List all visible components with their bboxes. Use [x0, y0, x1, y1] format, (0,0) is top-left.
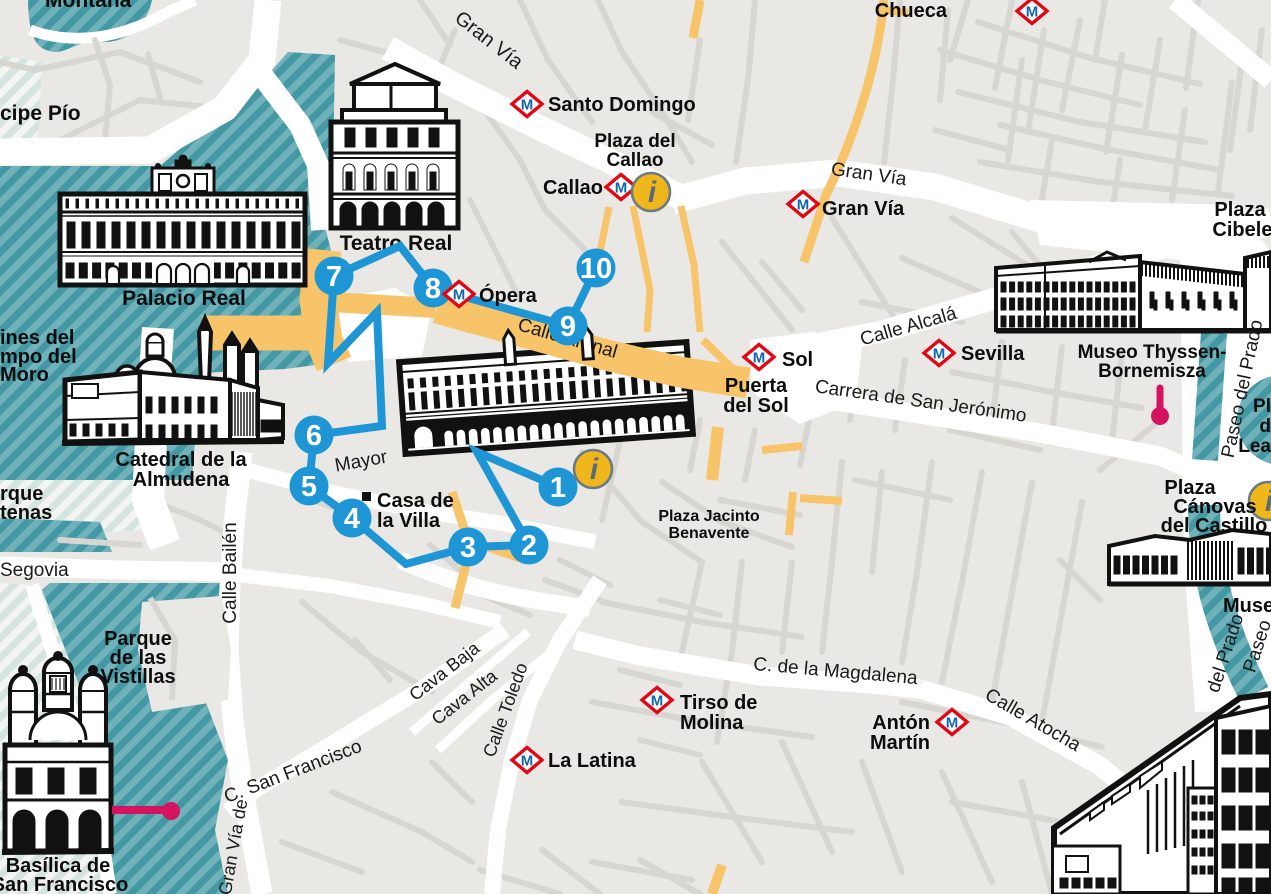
svg-text:M: M	[615, 180, 628, 197]
svg-text:tenas: tenas	[0, 502, 52, 524]
svg-text:del Castillo: del Castillo	[1161, 515, 1268, 537]
svg-text:Martín: Martín	[870, 732, 930, 754]
svg-text:Montaña: Montaña	[45, 0, 132, 12]
svg-text:Palacio Real: Palacio Real	[122, 287, 246, 310]
svg-text:Pl: Pl	[1253, 396, 1271, 417]
svg-text:Catedral de la: Catedral de la	[115, 449, 247, 471]
svg-text:Plaza del: Plaza del	[594, 131, 675, 152]
svg-text:Almudena: Almudena	[133, 469, 231, 491]
svg-text:10: 10	[580, 253, 612, 285]
svg-text:Ópera: Ópera	[479, 283, 538, 307]
svg-text:Bornemisza: Bornemisza	[1098, 361, 1206, 382]
svg-text:La Latina: La Latina	[548, 750, 637, 772]
svg-text:M: M	[651, 693, 664, 710]
svg-text:Callao: Callao	[606, 150, 663, 171]
svg-text:1: 1	[550, 472, 566, 504]
svg-text:Moro: Moro	[0, 364, 49, 386]
svg-text:5: 5	[301, 471, 317, 503]
svg-text:M: M	[1026, 4, 1039, 21]
svg-text:i: i	[1265, 485, 1271, 518]
svg-text:Calle Bailén: Calle Bailén	[220, 522, 241, 623]
svg-text:Santo Domingo: Santo Domingo	[548, 94, 696, 116]
svg-text:d: d	[1259, 416, 1271, 437]
svg-text:Cibeles: Cibeles	[1212, 219, 1271, 241]
svg-text:Sevilla: Sevilla	[961, 343, 1025, 365]
svg-text:M: M	[753, 350, 766, 367]
svg-text:Callao: Callao	[543, 177, 603, 199]
svg-text:M: M	[521, 97, 534, 114]
svg-text:Antón: Antón	[872, 712, 930, 734]
svg-text:9: 9	[560, 311, 576, 343]
svg-text:Segovia: Segovia	[0, 560, 69, 581]
svg-text:Gran Vía: Gran Vía	[822, 198, 905, 220]
svg-text:Plaza: Plaza	[1214, 199, 1266, 221]
svg-text:M: M	[946, 715, 959, 732]
svg-text:Vistillas: Vistillas	[100, 666, 175, 688]
svg-text:M: M	[453, 287, 466, 304]
svg-text:6: 6	[306, 420, 322, 452]
svg-text:8: 8	[425, 273, 441, 305]
svg-text:la Villa: la Villa	[377, 510, 441, 532]
svg-text:i: i	[648, 176, 657, 209]
svg-text:Sol: Sol	[782, 349, 813, 371]
svg-text:San Francisco: San Francisco	[0, 874, 128, 894]
svg-text:Molina: Molina	[680, 712, 744, 734]
svg-text:M: M	[933, 346, 946, 363]
svg-text:3: 3	[460, 532, 476, 564]
svg-text:cipe Pío: cipe Pío	[0, 102, 81, 125]
svg-text:Chueca: Chueca	[875, 0, 948, 22]
svg-text:Benavente: Benavente	[669, 525, 750, 542]
svg-text:del Sol: del Sol	[723, 395, 789, 417]
svg-text:Tirso de: Tirso de	[680, 692, 757, 714]
svg-text:Casa de: Casa de	[377, 490, 454, 512]
svg-text:4: 4	[344, 503, 360, 535]
svg-text:Puerta: Puerta	[725, 375, 788, 397]
svg-text:7: 7	[326, 261, 342, 293]
svg-text:Museo Thyssen-: Museo Thyssen-	[1078, 342, 1227, 363]
svg-text:M: M	[797, 197, 810, 214]
svg-text:Lea: Lea	[1238, 436, 1271, 457]
svg-text:Plaza Jacinto: Plaza Jacinto	[658, 508, 760, 525]
svg-text:i: i	[590, 453, 599, 486]
svg-text:2: 2	[521, 530, 537, 562]
svg-text:M: M	[521, 753, 534, 770]
